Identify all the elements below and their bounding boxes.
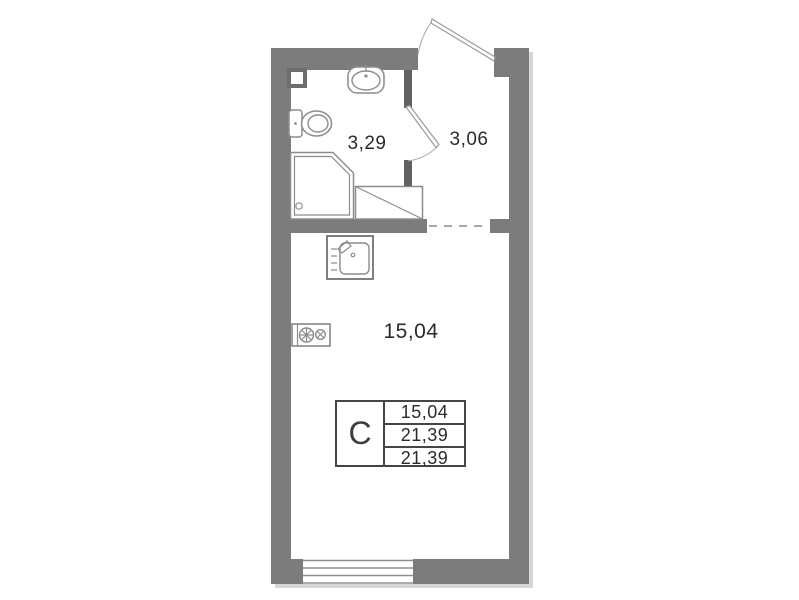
unit-type-letter: С [337, 402, 385, 465]
unit-legend-table: С 15,04 21,39 21,39 [335, 400, 466, 467]
kitchen-sink-icon [327, 236, 373, 279]
unit-legend-values: 15,04 21,39 21,39 [385, 402, 464, 465]
vent-shaft-icon [289, 70, 305, 86]
bath-sink-icon [348, 63, 384, 93]
hallway-area-label: 3,06 [441, 129, 497, 151]
window-icon [303, 559, 413, 584]
living-room-area-label: 15,04 [379, 320, 443, 344]
washing-machine-icon [356, 187, 423, 220]
entrance-door-icon [418, 19, 495, 61]
plan-linework [0, 0, 799, 600]
shower-tray-icon [291, 153, 354, 220]
floor-plan: 3,29 3,06 15,04 С 15,04 21,39 21,39 [0, 0, 799, 600]
stove-icon [292, 324, 330, 346]
bathroom-area-label: 3,29 [339, 133, 395, 155]
interior-door-icon [406, 106, 439, 162]
legend-overall-area: 21,39 [385, 446, 464, 469]
legend-total-area: 21,39 [385, 423, 464, 446]
toilet-icon [289, 110, 332, 137]
legend-living-area: 15,04 [385, 402, 464, 423]
